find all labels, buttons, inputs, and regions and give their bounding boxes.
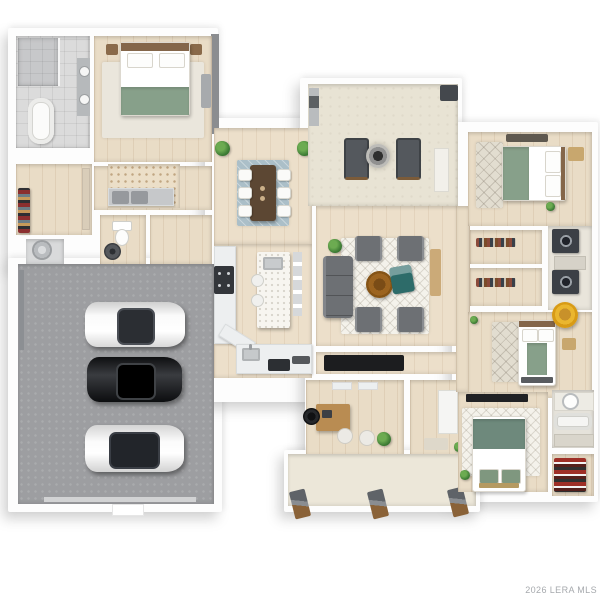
wall-shelf — [358, 382, 378, 390]
washer — [112, 191, 129, 204]
bathtub — [554, 413, 592, 430]
nightstand — [568, 147, 584, 161]
linen-shelf — [554, 434, 594, 447]
floor-plan: 2026 LERA MLS — [0, 0, 600, 600]
teal-chaise — [389, 264, 415, 294]
blanket — [473, 419, 525, 449]
car-white-sedan — [85, 302, 185, 347]
foot-bench — [521, 377, 553, 383]
range-stove — [214, 266, 234, 294]
watermark: 2026 LERA MLS — [525, 585, 597, 595]
wall-shadow-edge — [211, 34, 219, 134]
hanging-clothes — [476, 278, 516, 287]
armchair — [397, 307, 424, 332]
master-bed — [120, 42, 190, 116]
pantry-shelves — [293, 252, 302, 316]
closet-shelf — [82, 168, 90, 230]
nightstand — [562, 338, 576, 350]
grill — [440, 85, 458, 101]
kitchen-sink — [242, 348, 260, 361]
desk — [316, 404, 350, 431]
burner-dots — [218, 272, 221, 275]
dining-chair — [238, 187, 252, 199]
pouf — [359, 430, 375, 446]
room-mud-hall — [150, 215, 212, 264]
dryer — [131, 191, 148, 204]
outdoor-appliance — [309, 96, 319, 108]
blanket — [121, 87, 189, 115]
nightstand — [106, 44, 118, 55]
tv-console — [466, 394, 528, 402]
room-closet2b — [470, 268, 542, 306]
dresser — [506, 134, 548, 142]
vacuum — [104, 243, 121, 260]
tv-console — [324, 355, 404, 371]
round-sink — [562, 393, 579, 410]
island-sink — [263, 257, 283, 270]
car-sports-coupe — [85, 425, 184, 472]
media-console — [430, 249, 441, 296]
fire-pit — [366, 144, 390, 168]
hanging-clothes — [476, 238, 516, 247]
nightstand — [190, 44, 202, 55]
dining-table — [250, 165, 276, 221]
washer — [552, 229, 579, 253]
dining-chair — [277, 169, 291, 181]
bedroom-rug — [492, 322, 520, 382]
headboard — [121, 43, 189, 51]
wall-shelf — [332, 382, 352, 390]
pillow — [545, 151, 561, 173]
faucet — [249, 344, 252, 350]
bed — [472, 416, 526, 492]
papasan-chair — [552, 302, 578, 328]
car-cabin — [109, 432, 161, 470]
pillow — [479, 469, 499, 484]
pillow — [127, 53, 153, 68]
plant — [215, 141, 230, 156]
hanging-clothes — [554, 458, 586, 492]
headboard — [519, 321, 555, 327]
pillow — [538, 329, 554, 342]
dining-chair — [238, 205, 252, 217]
sofa — [323, 256, 353, 318]
coffee-table — [366, 271, 393, 298]
washer-door — [559, 234, 573, 248]
garage-shelving — [19, 270, 24, 350]
bed — [502, 146, 566, 201]
bar-stool — [251, 294, 264, 307]
lounge-chair — [396, 138, 421, 180]
plant — [460, 470, 470, 480]
car-cabin — [116, 363, 156, 399]
dining-chair — [277, 187, 291, 199]
dining-chair — [277, 205, 291, 217]
car-black-sedan — [87, 357, 182, 402]
plant — [377, 432, 391, 446]
laundry-shelf — [554, 256, 586, 270]
table-centerpiece — [260, 186, 265, 191]
vanity-sink — [79, 94, 90, 105]
cooktop — [268, 359, 290, 371]
clothes-rack — [18, 188, 30, 233]
vanity-sink — [79, 66, 90, 77]
dryer — [552, 270, 579, 294]
bed — [518, 320, 556, 386]
entry-cabinet — [438, 390, 458, 434]
dryer-door — [559, 275, 573, 289]
dishwasher — [292, 356, 310, 364]
pillow — [501, 469, 521, 484]
armchair — [397, 236, 424, 261]
plant — [328, 239, 342, 253]
room-closet2a — [470, 230, 542, 264]
plant — [546, 202, 555, 211]
pillow — [545, 175, 561, 197]
dining-chair — [238, 169, 252, 181]
laptop — [322, 410, 332, 418]
garage-step — [112, 504, 144, 516]
patio-console — [434, 148, 449, 192]
pillow — [522, 329, 538, 342]
bedroom-rug — [476, 142, 503, 208]
garage-door-threshold — [44, 497, 196, 502]
pillow — [159, 53, 185, 68]
entry-bench — [424, 438, 448, 450]
bathtub — [28, 98, 54, 144]
lounge-chair — [344, 138, 369, 180]
office-chair — [303, 408, 320, 425]
bar-stool — [251, 274, 264, 287]
pouf — [337, 428, 353, 444]
blanket — [503, 147, 529, 200]
shower — [18, 38, 60, 86]
plant — [470, 316, 478, 324]
dresser — [201, 74, 211, 108]
armchair — [355, 236, 382, 261]
armchair — [355, 307, 382, 332]
blanket — [527, 343, 547, 375]
headboard — [561, 147, 565, 200]
foot-cushions — [479, 483, 519, 488]
water-heater — [32, 240, 52, 260]
car-cabin — [117, 308, 155, 344]
